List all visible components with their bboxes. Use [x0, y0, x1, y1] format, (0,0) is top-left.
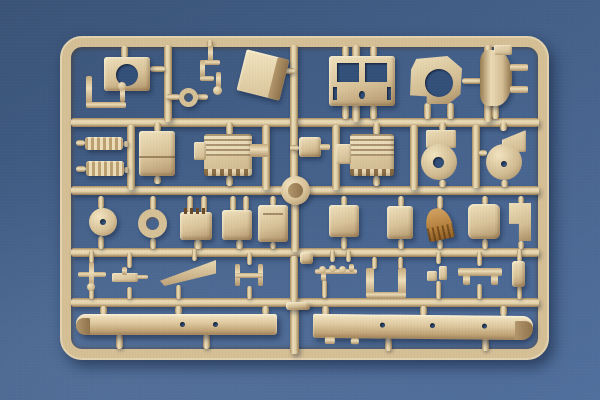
sprue-gate-stub-27 [439, 180, 446, 187]
sprue-gate-stub-81 [482, 338, 489, 351]
part-hanger-box [329, 205, 359, 237]
sprue-gate-stub-52 [518, 241, 524, 249]
sprue-runner-9 [127, 125, 135, 190]
part-bent-pipe-detail-4 [200, 76, 214, 81]
sprue-gate-stub-76 [203, 334, 210, 349]
sprue-runner-5 [164, 45, 172, 122]
sprue-gate-stub-14 [492, 105, 499, 119]
part-engine-block-a-detail-2 [194, 142, 206, 160]
part-linkage-detail-5 [321, 273, 326, 281]
part-mg-mount-detail-2 [137, 275, 148, 279]
part-road-wheel-detail-1 [100, 219, 106, 225]
sprue-gate-stub-69 [477, 284, 482, 299]
part-fan-plate-detail-1 [425, 69, 453, 97]
part-pipe-bracket-detail-2 [86, 102, 126, 108]
sprue-runner-15 [290, 256, 298, 302]
sprue-gate-stub-32 [98, 236, 104, 249]
part-chassis-rail-right-detail-3 [482, 324, 487, 329]
sprue-gate-stub-67 [436, 281, 441, 299]
sprue-gate-stub-56 [127, 287, 132, 299]
sprue-gate-stub-39 [243, 196, 249, 211]
sprue-gate-stub-3 [166, 94, 180, 100]
sprue-runner-16 [290, 306, 299, 354]
part-strip-vert [512, 261, 525, 287]
sprue-gate-stub-44 [341, 237, 347, 249]
part-chassis-rail-right-detail-1 [380, 323, 385, 328]
part-h-rod-detail-3 [235, 273, 263, 278]
sprue-runner-6 [290, 45, 298, 190]
part-cab-rear-panel-detail-3 [333, 87, 337, 100]
sprue-gate-stub-34 [150, 238, 156, 249]
part-small-pair-detail-1 [427, 271, 437, 281]
sprue-gate-stub-80 [385, 338, 392, 351]
part-cab-rear-panel-detail-2 [365, 63, 387, 82]
part-curved-panel [480, 50, 512, 106]
part-chassis-rail-left-detail-1 [180, 322, 185, 327]
sprue-gate-stub-17 [123, 141, 129, 147]
part-tall-box-2-detail-1 [263, 213, 283, 215]
part-mg-mount-detail-3 [122, 267, 127, 275]
sprue-gate-stub-40 [236, 240, 243, 249]
sprue-gate-stub-58 [176, 285, 181, 299]
sprue-gate-stub-29 [501, 180, 508, 187]
part-curved-panel-detail-1 [510, 64, 528, 71]
sprue-gate-stub-57 [192, 249, 197, 261]
sprue-gate-stub-79 [500, 306, 507, 316]
part-engine-block-b-detail-1 [336, 144, 351, 164]
part-linkage-detail-4 [339, 266, 346, 273]
part-flange-box-detail-1 [320, 144, 330, 150]
part-small-pair-detail-2 [439, 266, 447, 280]
sprue-gate-stub-38 [230, 196, 236, 211]
sprue-gate-stub-25 [373, 176, 380, 186]
sprue-gate-stub-23 [290, 145, 299, 151]
part-chassis-rail-right [313, 314, 533, 340]
sprue-runner-12 [410, 125, 418, 190]
part-chassis-rail-left-detail-2 [213, 322, 218, 327]
part-foot-bracket-detail-2 [463, 275, 470, 285]
part-tall-box [139, 131, 175, 176]
part-tire-ring [138, 209, 167, 238]
part-curved-panel-detail-2 [510, 86, 528, 93]
part-foot-bracket [458, 265, 502, 285]
part-axle-cross [78, 262, 106, 288]
part-u-bracket-detail-3 [366, 292, 406, 298]
part-center-hub-detail-1 [288, 183, 303, 198]
sprue-gate-stub-22 [226, 176, 233, 186]
sprue-gate-stub-37 [194, 240, 202, 249]
part-cab-rear-panel-detail-5 [359, 91, 365, 99]
part-chassis-rail-right-detail-4 [325, 337, 335, 344]
part-grille-strip-b [86, 161, 124, 176]
part-blower-housing-detail-3 [433, 157, 444, 168]
part-tall-box-detail-1 [139, 156, 175, 158]
part-hook-bracket [486, 130, 528, 180]
sprue-gate-stub-10 [370, 105, 377, 119]
part-road-wheel [89, 208, 117, 236]
part-runner-tab [286, 302, 310, 310]
part-bent-pipe-detail-6 [213, 86, 222, 95]
sprue-gate-stub-50 [482, 239, 488, 249]
part-knob-box-detail-1 [184, 208, 206, 214]
part-blower-housing [419, 130, 463, 180]
sprue-gate-stub-33 [150, 196, 156, 210]
part-box-plain-2 [387, 206, 413, 239]
part-small-pair [427, 263, 447, 282]
sprue-gate-stub-46 [398, 239, 404, 249]
part-mg-mount [112, 267, 148, 287]
part-chassis-rail-right-detail-5 [351, 338, 359, 344]
part-pipe-bracket [84, 74, 132, 112]
part-engine-block-a-detail-1 [250, 144, 268, 157]
part-engine-block-b [350, 134, 394, 176]
sprue-photo [0, 0, 600, 400]
sprue-runner-1 [71, 118, 539, 127]
part-tall-box-2 [258, 205, 288, 242]
part-u-bracket [366, 268, 406, 298]
sprue-gate-stub-18 [124, 167, 129, 173]
part-grille-strip-a [85, 137, 123, 150]
part-hook-bracket-detail-3 [501, 161, 507, 167]
sprue-gate-stub-60 [247, 286, 252, 299]
part-flange-box [299, 137, 321, 157]
part-tab-square [300, 252, 313, 264]
sprue-gate-stub-68 [477, 251, 482, 266]
part-axle-cross-detail-3 [87, 283, 95, 291]
part-linkage-detail-6 [349, 264, 354, 272]
sprue-gate-stub-63 [322, 280, 327, 298]
part-cab-rear-panel-detail-4 [387, 87, 391, 100]
sprue-gate-stub-20 [154, 176, 161, 184]
part-linkage [313, 261, 361, 281]
part-pipe-bracket-detail-4 [118, 82, 126, 90]
sprue-runner-13 [472, 125, 480, 188]
sprue-gate-stub-75 [116, 334, 123, 349]
sprue-gate-stub-42 [270, 242, 276, 249]
part-round-box [468, 204, 500, 239]
part-curved-panel-detail-3 [494, 45, 512, 55]
part-cab-rear-panel-detail-1 [337, 63, 359, 82]
part-box-mid [222, 210, 252, 240]
sprue-runner-10 [262, 125, 270, 190]
part-h-rod [231, 264, 267, 286]
part-engine-block-a [204, 134, 252, 176]
sprue-gate-stub-51 [518, 196, 524, 204]
sprue-gate-stub-16 [76, 166, 86, 172]
part-foot-bracket-detail-3 [491, 275, 498, 285]
part-knob-box [180, 212, 212, 240]
part-linkage-detail-2 [319, 266, 326, 273]
part-pipe-bracket-detail-3 [120, 88, 125, 102]
sprue-gate-stub-12 [447, 103, 454, 119]
sprue-gate-stub-2 [150, 66, 165, 72]
part-center-hub [281, 176, 310, 205]
part-chassis-rail-right-detail-2 [430, 323, 435, 328]
sprue-gate-stub-11 [424, 103, 431, 119]
sprue-gate-stub-55 [127, 252, 132, 268]
sprue-gate-stub-71 [517, 286, 522, 299]
part-chassis-rail-left [76, 314, 277, 335]
part-cab-rear-panel [329, 56, 395, 106]
sprue-gate-stub-9 [342, 105, 349, 119]
sprue-gate-stub-48 [437, 240, 443, 249]
part-linkage-detail-3 [329, 265, 336, 272]
part-chassis-rail-left-detail-3 [76, 318, 90, 335]
sprue-gate-stub-15 [76, 140, 85, 146]
part-bent-pipe [196, 46, 226, 98]
